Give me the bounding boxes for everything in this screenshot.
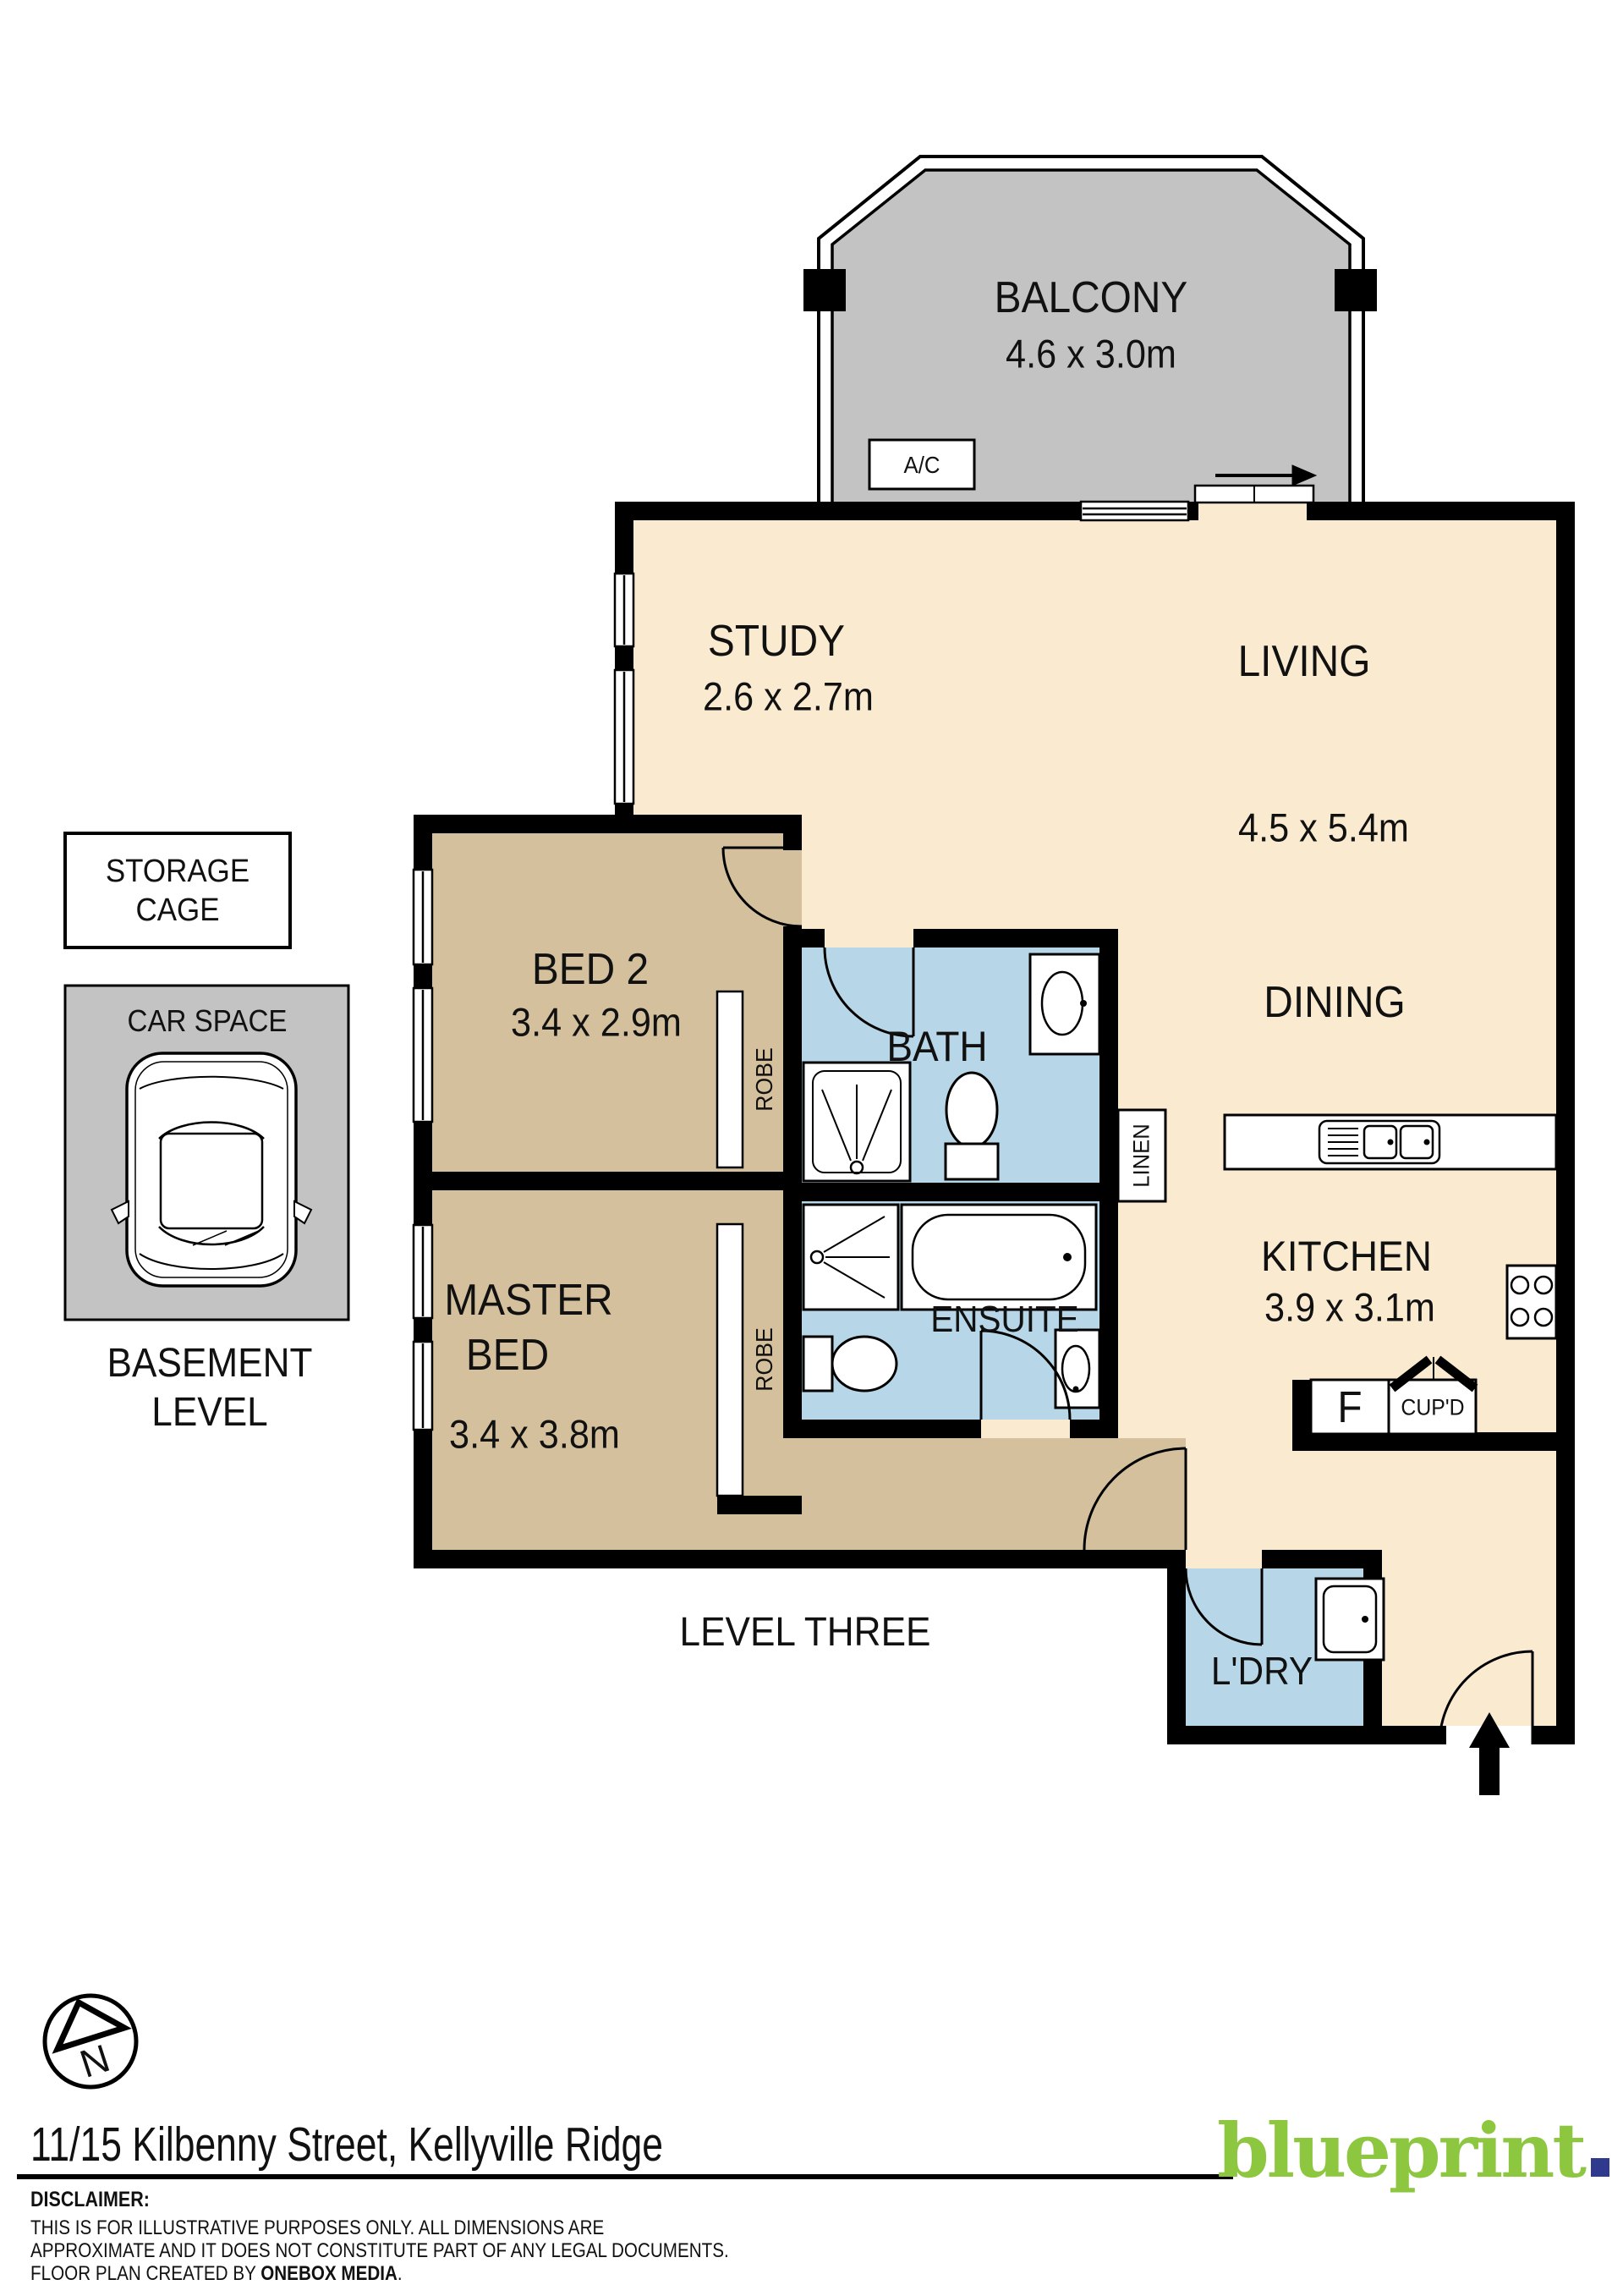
cupboard-label: CUP'D — [1401, 1397, 1464, 1420]
basement-level-label-line1: BASEMENT — [107, 1343, 313, 1384]
car-space-label: CAR SPACE — [128, 1006, 288, 1036]
bath-toilet-bowl — [946, 1073, 997, 1147]
study-label: STUDY — [708, 619, 845, 663]
ensuite-toilet-bowl — [832, 1337, 896, 1391]
balcony-pillar-left — [803, 269, 846, 311]
disclaimer-line-1: THIS IS FOR ILLUSTRATIVE PURPOSES ONLY. … — [30, 2216, 604, 2240]
basement-level-label-line2: LEVEL — [151, 1392, 267, 1433]
balcony-dims: 4.6 x 3.0m — [1006, 334, 1176, 374]
kitchen-label: KITCHEN — [1261, 1235, 1432, 1277]
bed2-robe-recess — [717, 991, 743, 1167]
floor-plan-drawing — [0, 0, 1623, 2296]
bath-toilet-cistern — [946, 1144, 998, 1179]
study-dims: 2.6 x 2.7m — [703, 677, 874, 717]
master-bed-label-line1: MASTER — [444, 1278, 612, 1322]
linen-label: LINEN — [1131, 1123, 1154, 1188]
balcony-pillar-right — [1335, 269, 1377, 311]
sliding-door-opening — [1198, 502, 1307, 520]
ensuite-label: ENSUITE — [930, 1301, 1078, 1338]
blueprint-logo-text: blueprint — [1217, 2106, 1584, 2194]
footer-divider — [17, 2174, 1233, 2179]
bed2-robe-label: ROBE — [753, 1047, 776, 1111]
hall-floor — [783, 1438, 1186, 1550]
disclaimer-line-3-suffix: . — [398, 2262, 403, 2285]
disclaimer-title: DISCLAIMER: — [30, 2188, 150, 2212]
master-bed-label-line2: BED — [466, 1333, 549, 1377]
master-robe-label: ROBE — [753, 1327, 776, 1391]
kitchen-dims: 3.9 x 3.1m — [1264, 1288, 1435, 1327]
storage-cage-label-line2: CAGE — [135, 894, 219, 926]
disclaimer-line-3-prefix: FLOOR PLAN CREATED BY — [30, 2262, 260, 2285]
laundry-label: L'DRY — [1211, 1651, 1313, 1690]
cooktop — [1507, 1266, 1556, 1338]
bed2-label: BED 2 — [532, 948, 649, 991]
blueprint-logo: blueprint — [1217, 2113, 1609, 2188]
master-bed-dims: 3.4 x 3.8m — [449, 1414, 620, 1454]
floor-plan-page: BALCONY 4.6 x 3.0m A/C STUDY 2.6 x 2.7m … — [0, 0, 1623, 2296]
master-robe-recess — [717, 1224, 743, 1496]
car-top-view-icon — [112, 1053, 311, 1286]
storage-cage-box — [65, 833, 290, 948]
dining-label: DINING — [1264, 980, 1405, 1024]
bed2-dims: 3.4 x 2.9m — [511, 1002, 682, 1042]
property-address: 11/15 Kilbenny Street, Kellyville Ridge — [30, 2117, 663, 2172]
bath-label: BATH — [886, 1025, 987, 1068]
living-label: LIVING — [1238, 640, 1371, 684]
balcony-label: BALCONY — [995, 276, 1188, 320]
storage-cage-label-line1: STORAGE — [106, 855, 249, 887]
bed2-door-gap — [783, 850, 802, 926]
laundry-tub — [1316, 1579, 1384, 1660]
fridge-label: F — [1337, 1386, 1362, 1430]
disclaimer-line-3-bold: ONEBOX MEDIA — [260, 2262, 398, 2285]
living-dims: 4.5 x 5.4m — [1238, 808, 1409, 848]
level-three-label: LEVEL THREE — [680, 1612, 931, 1653]
ensuite-toilet-cistern — [803, 1337, 832, 1391]
disclaimer-line-3: FLOOR PLAN CREATED BY ONEBOX MEDIA. — [30, 2262, 403, 2286]
disclaimer-line-2: APPROXIMATE AND IT DOES NOT CONSTITUTE P… — [30, 2239, 729, 2263]
blueprint-logo-dot — [1591, 2158, 1609, 2177]
ac-label: A/C — [904, 453, 940, 477]
